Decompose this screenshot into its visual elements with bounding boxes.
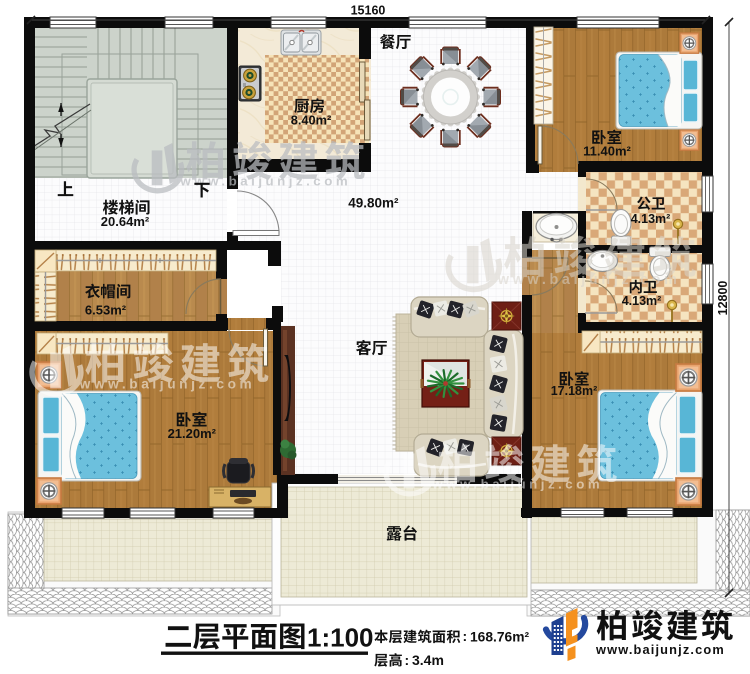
svg-text:www.baijunjz.com: www.baijunjz.com — [79, 377, 256, 392]
svg-text:17.18m²: 17.18m² — [551, 384, 598, 398]
svg-text:1:100: 1:100 — [307, 623, 374, 653]
svg-text:3.4m: 3.4m — [412, 652, 444, 668]
svg-text:6.53m²: 6.53m² — [85, 303, 127, 318]
svg-text:8.40m²: 8.40m² — [291, 113, 332, 128]
svg-text:www.baijunjz.com: www.baijunjz.com — [431, 477, 603, 492]
svg-text:www.baijunjz.com: www.baijunjz.com — [595, 642, 725, 657]
svg-text:www.baijunjz.com: www.baijunjz.com — [497, 272, 681, 288]
svg-text::: : — [463, 628, 468, 644]
svg-text:49.80m²: 49.80m² — [348, 195, 399, 210]
svg-text:4.13m²: 4.13m² — [622, 294, 662, 308]
svg-text:www.baijunjz.com: www.baijunjz.com — [179, 174, 351, 189]
svg-text:20.64m²: 20.64m² — [101, 214, 150, 229]
svg-text:21.20m²: 21.20m² — [168, 426, 217, 441]
svg-text:168.76m²: 168.76m² — [470, 630, 529, 645]
svg-text:12800: 12800 — [716, 281, 730, 316]
svg-text::: : — [405, 652, 410, 668]
svg-text:15160: 15160 — [351, 3, 386, 17]
svg-text:11.40m²: 11.40m² — [583, 144, 631, 159]
svg-text:4.13m²: 4.13m² — [631, 212, 671, 226]
